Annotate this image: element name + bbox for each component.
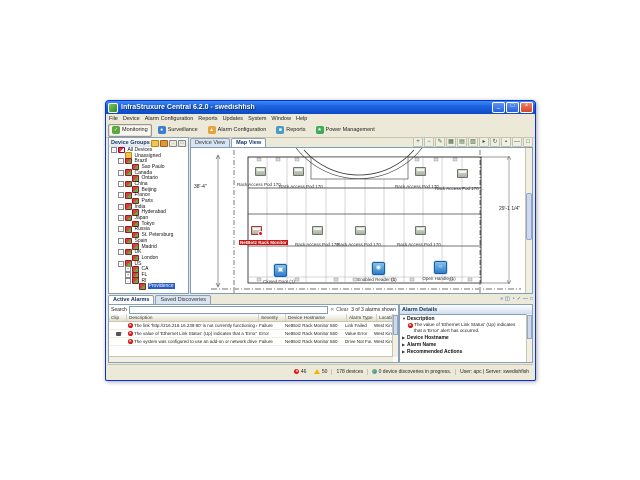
column-header-location[interactable]: Location bbox=[377, 314, 393, 321]
minimize-button[interactable]: _ bbox=[492, 102, 505, 113]
alarm-severity-icon: ✕ bbox=[128, 331, 133, 336]
rack-label: Rack Access Pod 170 ... bbox=[397, 242, 446, 247]
alarm-search-input[interactable] bbox=[129, 306, 328, 314]
collapse-icon[interactable]: - bbox=[118, 226, 124, 232]
close-button[interactable]: × bbox=[520, 102, 533, 113]
collapse-icon[interactable]: - bbox=[118, 158, 124, 164]
monitoring-icon: ✓ bbox=[112, 126, 120, 134]
alarm-details-section: »◫◔✓—□ Alarm Details ▼Description✕The va… bbox=[399, 295, 533, 363]
zoom-in-icon[interactable]: + bbox=[413, 137, 423, 147]
alarm-row[interactable]: ✕The link 'http://216.216.16.239:80' is … bbox=[109, 322, 393, 330]
table-layout-icon[interactable]: ▤ bbox=[457, 137, 467, 147]
dimension-label: 29'-1 1/4" bbox=[499, 206, 520, 212]
alarm-description: The link 'http://216.216.16.239:80' is n… bbox=[134, 323, 257, 328]
severity-cell: Failure bbox=[257, 339, 283, 344]
details-section-description[interactable]: ▼Description bbox=[402, 315, 525, 322]
tree-item-label: Madrid bbox=[141, 244, 158, 250]
collapse-icon[interactable]: - bbox=[118, 238, 124, 244]
devices-icon bbox=[118, 147, 125, 153]
enabled-reader-icon[interactable]: ◉ bbox=[372, 262, 385, 275]
collapse-icon[interactable]: - bbox=[118, 249, 124, 255]
group-icon bbox=[125, 169, 132, 176]
alarm-configuration-icon: ▲ bbox=[208, 126, 216, 134]
layers-icon[interactable]: ▧ bbox=[468, 137, 478, 147]
details-severity-icon: ✕ bbox=[408, 323, 413, 328]
title-bar[interactable]: InfraStruxure Central 6.2.0 - swedishfis… bbox=[106, 101, 535, 114]
group-icon bbox=[125, 192, 132, 199]
refresh-map-icon[interactable]: ↻ bbox=[490, 137, 500, 147]
main-toolbar: ✓Monitoring●Surveillance▲Alarm Configura… bbox=[106, 123, 535, 138]
alarm-count-label: 3 of 3 alarms shown bbox=[351, 307, 396, 313]
collapse-icon[interactable]: - bbox=[118, 170, 124, 176]
dimension-label: 38'-4" bbox=[194, 184, 207, 190]
camera-clip-icon[interactable] bbox=[116, 332, 121, 336]
column-header-clip[interactable]: Clip bbox=[109, 314, 127, 321]
group-icon bbox=[125, 238, 132, 245]
app-window: InfraStruxure Central 6.2.0 - swedishfis… bbox=[105, 100, 536, 381]
table-horizontal-scrollbar[interactable] bbox=[109, 356, 393, 362]
view-tabs: Device ViewMap View+−✎▦▤▧▸↻▪—□ bbox=[190, 137, 533, 147]
alarm-details-body: ▼Description✕The value of 'Ethernet Link… bbox=[400, 314, 527, 362]
building-icon[interactable] bbox=[160, 140, 168, 147]
group-icon bbox=[125, 203, 132, 210]
details-vertical-scrollbar[interactable] bbox=[526, 314, 532, 362]
collapse-icon[interactable]: - bbox=[118, 181, 124, 187]
column-header-alarm-type[interactable]: Alarm Type bbox=[347, 314, 377, 321]
details-section-recommended-actions[interactable]: ▶Recommended Actions bbox=[402, 348, 525, 355]
select-icon[interactable]: ▸ bbox=[479, 137, 489, 147]
tab-saved-discoveries[interactable]: Saved Discoveries bbox=[155, 295, 211, 304]
discovery-icon bbox=[372, 369, 377, 374]
severity-cell: Error bbox=[257, 331, 283, 336]
surveillance-icon: ● bbox=[158, 126, 166, 134]
rack-label: Rack Access Pod 170 ... bbox=[279, 184, 328, 189]
toolbar-button-label: Reports bbox=[286, 127, 305, 133]
toolbar-button-label: Monitoring bbox=[122, 127, 148, 133]
tree-item-providence[interactable]: Providence bbox=[109, 284, 188, 290]
table-vertical-scrollbar[interactable] bbox=[392, 314, 398, 357]
error-count: ✕ 46 bbox=[290, 369, 306, 375]
search-label: Search bbox=[111, 307, 127, 313]
group-icon bbox=[125, 181, 132, 188]
zoom-out-icon[interactable]: − bbox=[424, 137, 434, 147]
location-cell: West Kingston bbox=[372, 331, 393, 336]
minimize-details-icon[interactable]: — bbox=[523, 296, 528, 302]
group-icon bbox=[125, 226, 132, 233]
maximize-details-icon[interactable]: □ bbox=[530, 296, 533, 302]
menu-item-device[interactable]: Device bbox=[123, 116, 140, 122]
toolbar-button-label: Power Management bbox=[326, 127, 375, 133]
group-icon bbox=[132, 277, 139, 284]
severity-cell: Failure bbox=[257, 323, 283, 328]
map-toolbar: +−✎▦▤▧▸↻▪—□ bbox=[412, 137, 533, 147]
menu-item-reports[interactable]: Reports bbox=[198, 116, 217, 122]
map-vertical-scrollbar[interactable] bbox=[525, 148, 532, 293]
map-panel: Device ViewMap View+−✎▦▤▧▸↻▪—□ bbox=[190, 137, 533, 294]
alarm-table-header: ClipDescriptionSeverityDevice HostnameAl… bbox=[109, 314, 393, 322]
device-groups-panel: Device Groups - □ -All DevicesUnassigned… bbox=[108, 137, 189, 294]
collapse-icon[interactable]: - bbox=[118, 192, 124, 198]
warning-icon bbox=[314, 369, 320, 374]
power-management-icon: ★ bbox=[316, 126, 324, 134]
reports-icon: ■ bbox=[276, 126, 284, 134]
double-arrow-icon[interactable]: » bbox=[500, 296, 503, 302]
enabled-reader-label: Enabled Reader (1) bbox=[357, 277, 396, 282]
clock-icon[interactable]: ◔ bbox=[512, 296, 515, 302]
new-folder-icon[interactable] bbox=[151, 140, 159, 147]
table-scroll-thumb[interactable] bbox=[393, 315, 398, 335]
collapse-icon[interactable]: - bbox=[118, 204, 124, 210]
minimize-panel-icon[interactable]: — bbox=[512, 137, 522, 147]
collapse-icon[interactable]: - bbox=[118, 215, 124, 221]
toolbar-button-label: Surveillance bbox=[168, 127, 198, 133]
minimize-sidebar-icon[interactable]: - bbox=[169, 140, 177, 147]
maximize-button[interactable]: □ bbox=[506, 102, 519, 113]
details-description-text: The value of 'Ethernet Link Status' (Up)… bbox=[414, 322, 523, 333]
collapse-icon[interactable]: - bbox=[125, 278, 131, 284]
details-section-label: Recommended Actions bbox=[407, 349, 462, 355]
device-count-label: 178 devices bbox=[331, 369, 363, 375]
column-header-description[interactable]: Description bbox=[127, 314, 259, 321]
device-groups-tree: -All DevicesUnassigned-BrazilSao Paulo-C… bbox=[108, 147, 189, 294]
alarm-severity-icon: ✕ bbox=[128, 323, 133, 328]
collapse-icon[interactable]: - bbox=[111, 147, 117, 153]
session-label: User: apc | Server: swedishfish bbox=[455, 369, 529, 375]
window-icon[interactable]: ◫ bbox=[505, 296, 510, 302]
app-logo-icon bbox=[108, 103, 118, 113]
menu-item-file[interactable]: File bbox=[109, 116, 118, 122]
column-header-device-hostname[interactable]: Device Hostname bbox=[286, 314, 347, 321]
error-count-value: 46 bbox=[301, 369, 307, 375]
details-section-label: Device Hostname bbox=[407, 335, 449, 341]
closed-door-icon[interactable]: ▣ bbox=[274, 264, 287, 277]
grid-layout-icon[interactable]: ▦ bbox=[446, 137, 456, 147]
alarm-type-cell: Value Error bbox=[343, 331, 372, 336]
warning-count: 50 bbox=[310, 369, 327, 375]
rack-label: Rack Access Pod 170 ... bbox=[435, 186, 484, 191]
clip-cell bbox=[109, 332, 126, 336]
open-handle-label: Open Handle (1) bbox=[422, 276, 455, 281]
lock-map-icon[interactable]: ▪ bbox=[501, 137, 511, 147]
tree-item-label: Providence bbox=[148, 283, 175, 289]
check-icon[interactable]: ✓ bbox=[517, 296, 521, 302]
details-section-label: Description bbox=[407, 316, 435, 322]
clear-link[interactable]: Clear bbox=[336, 307, 348, 313]
location-cell: West Kingston bbox=[372, 339, 393, 344]
menu-item-window[interactable]: Window bbox=[271, 116, 291, 122]
map-label-layer: ▣◉○Rack Access Pod 170 ...Rack Access Po… bbox=[191, 148, 526, 293]
window-title: InfraStruxure Central 6.2.0 - swedishfis… bbox=[121, 104, 491, 111]
alarm-type-cell: Drive Not Found bbox=[343, 339, 372, 344]
description-cell: ✕The system was configured to use an add… bbox=[126, 339, 257, 344]
tab-device-view[interactable]: Device View bbox=[190, 138, 230, 147]
warning-count-value: 50 bbox=[322, 369, 328, 375]
alarmed-rack-label[interactable]: NetBotz Rack Monitor bbox=[239, 240, 288, 245]
location-cell: West Kingston bbox=[372, 323, 393, 328]
status-bar: ✕ 46 50 178 devices 0 device discoveries… bbox=[108, 364, 533, 378]
rack-icon[interactable] bbox=[415, 226, 426, 235]
hostname-cell: NetBotz Rack Monitor 550 bbox=[283, 323, 343, 328]
alarm-severity-icon: ✕ bbox=[128, 339, 133, 344]
discovery-status-label: 0 device discoveries in progress. bbox=[379, 369, 452, 375]
tree-item-label: London bbox=[141, 255, 160, 261]
closed-door-label: Closed Door (1) bbox=[263, 279, 295, 284]
active-alarms-section: Search ✕ Clear 3 of 3 alarms shown ClipD… bbox=[108, 304, 399, 363]
alarm-description: The system was configured to use an add-… bbox=[134, 339, 257, 344]
alarm-type-cell: Link Failed bbox=[343, 323, 372, 328]
menu-item-system[interactable]: System bbox=[248, 116, 266, 122]
column-header-severity[interactable]: Severity bbox=[259, 314, 286, 321]
map-scroll-thumb[interactable] bbox=[526, 193, 532, 240]
hostname-cell: NetBotz Rack Monitor 550 bbox=[283, 339, 343, 344]
power-management-button[interactable]: ★Power Management bbox=[312, 124, 379, 137]
maximize-panel-icon[interactable]: □ bbox=[523, 137, 533, 147]
alarm-row[interactable]: ✕The value of 'Ethernet Link Status' (Up… bbox=[109, 330, 393, 338]
toolbar-button-label: Alarm Configuration bbox=[218, 127, 267, 133]
map-canvas[interactable]: ▣◉○Rack Access Pod 170 ...Rack Access Po… bbox=[190, 147, 533, 294]
alarms-panel: Active AlarmsSaved Discoveries Search ✕ … bbox=[108, 295, 533, 363]
rack-icon[interactable] bbox=[255, 167, 266, 176]
monitoring-button[interactable]: ✓Monitoring bbox=[108, 124, 152, 137]
group-icon bbox=[139, 283, 146, 290]
tab-map-view[interactable]: Map View bbox=[231, 138, 266, 147]
rack-label: Rack Access Pod 170 ... bbox=[337, 242, 386, 247]
menu-item-alarm-configuration[interactable]: Alarm Configuration bbox=[145, 116, 194, 122]
maximize-sidebar-icon[interactable]: □ bbox=[178, 140, 186, 147]
details-scroll-thumb[interactable] bbox=[527, 315, 532, 339]
alarm-configuration-button[interactable]: ▲Alarm Configuration bbox=[204, 124, 271, 137]
tab-active-alarms[interactable]: Active Alarms bbox=[108, 295, 154, 304]
error-icon: ✕ bbox=[294, 369, 299, 374]
camera-alarm-icon[interactable] bbox=[251, 226, 262, 235]
details-section-body: ✕The value of 'Ethernet Link Status' (Up… bbox=[402, 322, 525, 334]
description-cell: ✕The value of 'Ethernet Link Status' (Up… bbox=[126, 331, 257, 336]
details-section-alarm-name[interactable]: ▶Alarm Name bbox=[402, 341, 525, 348]
surveillance-button[interactable]: ●Surveillance bbox=[154, 124, 202, 137]
discovery-status: 0 device discoveries in progress. bbox=[367, 369, 451, 375]
rack-icon[interactable] bbox=[415, 167, 426, 176]
clear-search-icon[interactable]: ✕ bbox=[330, 307, 334, 313]
alarm-description: The value of 'Ethernet Link Status' (Up)… bbox=[134, 331, 257, 336]
alarm-details-toolbar: »◫◔✓—□ bbox=[399, 295, 533, 303]
rack-icon[interactable] bbox=[293, 167, 304, 176]
alarm-details-title: Alarm Details bbox=[402, 307, 437, 313]
menu-item-updates[interactable]: Updates bbox=[223, 116, 244, 122]
details-section-label: Alarm Name bbox=[407, 342, 436, 348]
group-icon bbox=[125, 249, 132, 256]
edit-map-icon[interactable]: ✎ bbox=[435, 137, 445, 147]
group-icon bbox=[125, 158, 132, 165]
rack-icon[interactable] bbox=[355, 226, 366, 235]
rack-icon[interactable] bbox=[312, 226, 323, 235]
hostname-cell: NetBotz Rack Monitor 550 bbox=[283, 331, 343, 336]
alarm-row[interactable]: ✕The system was configured to use an add… bbox=[109, 338, 393, 346]
menu-item-help[interactable]: Help bbox=[296, 116, 307, 122]
open-handle-icon[interactable]: ○ bbox=[434, 261, 447, 274]
reports-button[interactable]: ■Reports bbox=[272, 124, 309, 137]
description-cell: ✕The link 'http://216.216.16.239:80' is … bbox=[126, 323, 257, 328]
rack-icon[interactable] bbox=[457, 169, 468, 178]
alarm-details-panel: Alarm Details ▼Description✕The value of … bbox=[399, 304, 533, 363]
device-groups-title: Device Groups bbox=[111, 140, 150, 146]
details-section-device-hostname[interactable]: ▶Device Hostname bbox=[402, 334, 525, 341]
alarm-table: ClipDescriptionSeverityDevice HostnameAl… bbox=[109, 314, 393, 357]
group-icon bbox=[125, 215, 132, 222]
collapse-icon[interactable]: - bbox=[118, 261, 124, 267]
